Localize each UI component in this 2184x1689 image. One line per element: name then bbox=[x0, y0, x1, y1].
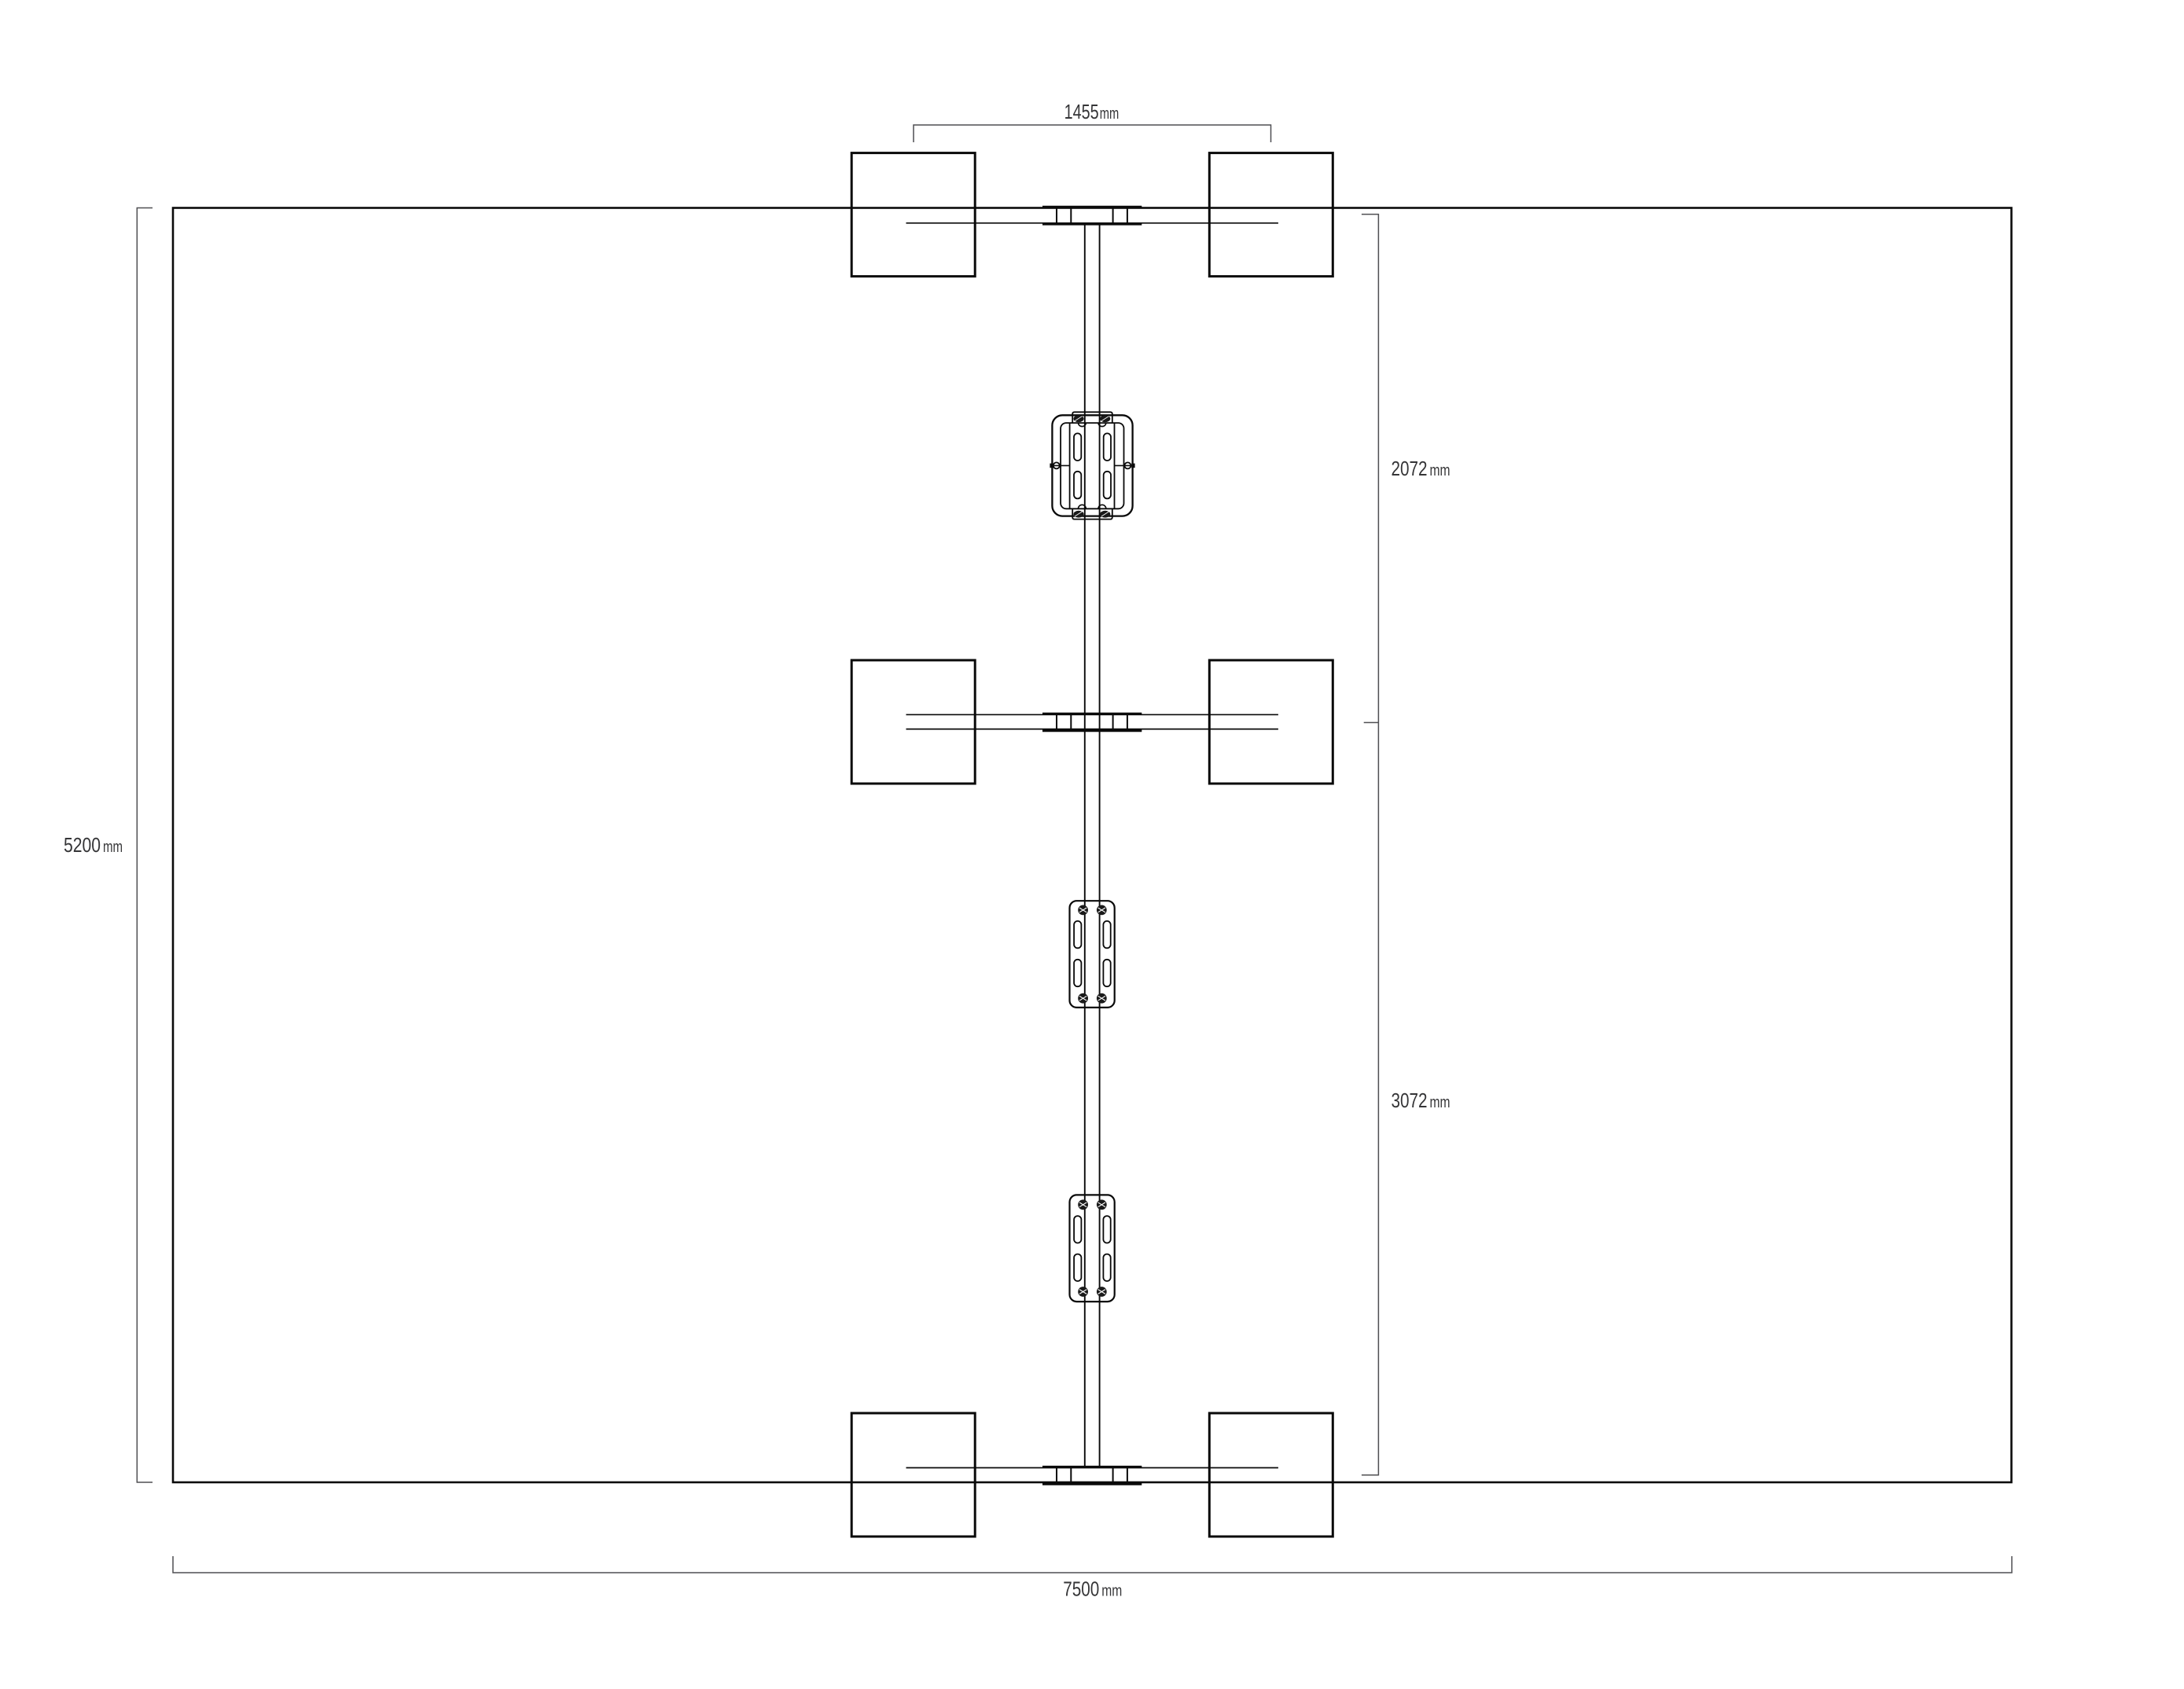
svg-text:mm: mm bbox=[1101, 1582, 1122, 1600]
svg-text:5200: 5200 bbox=[64, 833, 101, 857]
svg-text:7500: 7500 bbox=[1063, 1577, 1099, 1601]
svg-text:mm: mm bbox=[1430, 461, 1450, 479]
svg-text:mm: mm bbox=[1430, 1093, 1450, 1111]
svg-text:mm: mm bbox=[1100, 105, 1120, 123]
svg-text:3072: 3072 bbox=[1392, 1089, 1428, 1112]
svg-text:2072: 2072 bbox=[1392, 457, 1428, 480]
svg-text:1455: 1455 bbox=[1064, 100, 1099, 123]
svg-text:mm: mm bbox=[103, 838, 123, 856]
